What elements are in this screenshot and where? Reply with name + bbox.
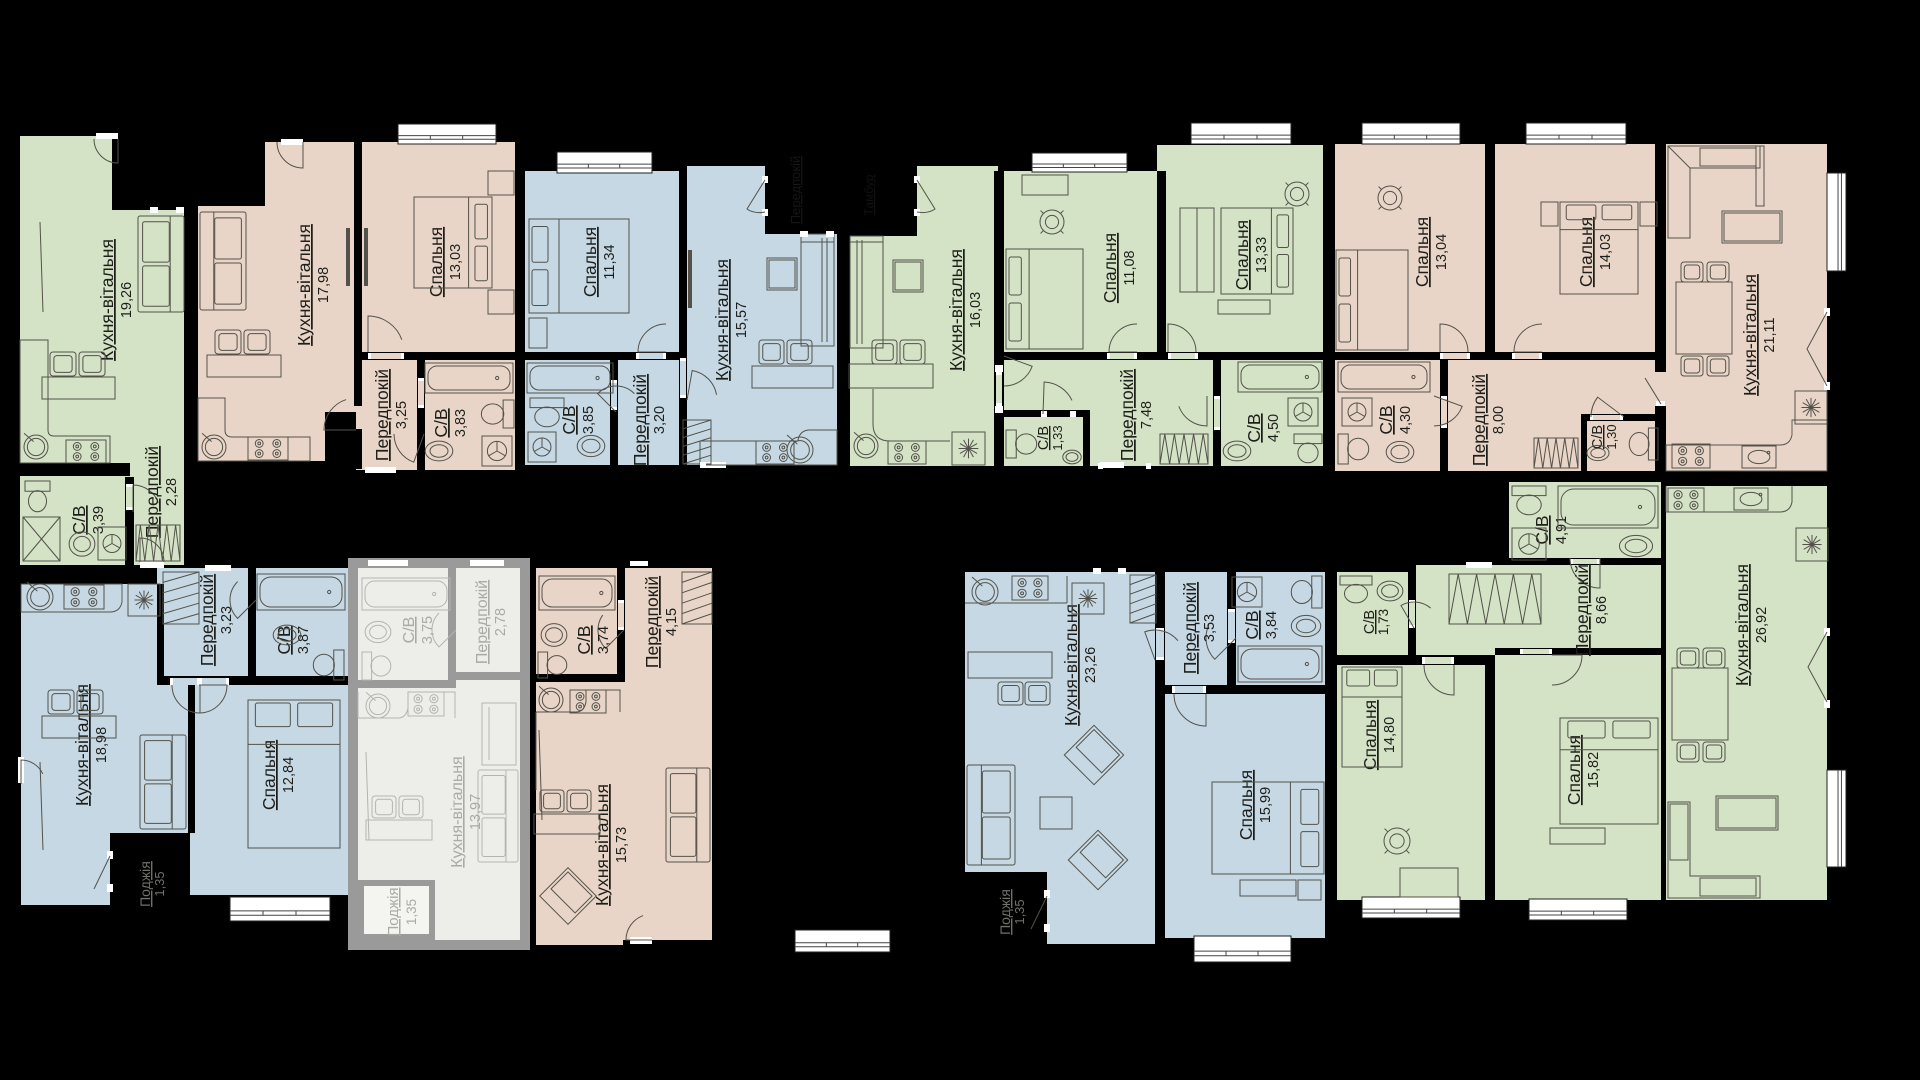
svg-text:Передпокій: Передпокій [1117,369,1137,461]
svg-text:26,92: 26,92 [1754,607,1770,643]
svg-text:Спальня: Спальня [580,227,600,297]
svg-text:Передпокій: Передпокій [1572,564,1592,656]
svg-text:Передпокій: Передпокій [788,156,803,224]
svg-text:14,03: 14,03 [1598,234,1614,270]
svg-text:Спальня: Спальня [1360,700,1380,770]
svg-text:3,85: 3,85 [581,406,597,434]
svg-text:1,73: 1,73 [1376,609,1391,635]
svg-text:7,48: 7,48 [1139,401,1155,429]
svg-text:8,00: 8,00 [1491,406,1507,434]
svg-text:12,84: 12,84 [281,757,297,793]
svg-text:4,91: 4,91 [1554,516,1570,544]
svg-text:3,39: 3,39 [91,506,107,534]
svg-text:С/В: С/В [559,405,579,434]
svg-text:Передпокій: Передпокій [642,576,662,668]
svg-text:Кухня-вітальня: Кухня-вітальня [946,249,966,371]
svg-text:14,80: 14,80 [1382,717,1398,753]
svg-text:13,04: 13,04 [1434,234,1450,270]
svg-text:18,98: 18,98 [94,727,110,763]
svg-text:Кухня-вітальня: Кухня-вітальня [294,224,314,346]
svg-text:3,23: 3,23 [219,606,235,634]
svg-text:21,11: 21,11 [1762,317,1778,352]
svg-text:15,73: 15,73 [614,827,630,863]
svg-text:С/В: С/В [1244,413,1264,442]
svg-text:11,34: 11,34 [602,244,618,279]
svg-text:Кухня-вітальня: Кухня-вітальня [449,756,466,867]
svg-text:3,20: 3,20 [652,406,668,434]
svg-text:Передпокій: Передпокій [1180,582,1200,674]
svg-text:Спальня: Спальня [259,740,279,810]
svg-text:23,26: 23,26 [1083,647,1099,683]
svg-text:1,35: 1,35 [1012,899,1027,924]
svg-text:С/В: С/В [1532,515,1552,544]
svg-text:Передпокій: Передпокій [1469,374,1489,466]
svg-text:3,74: 3,74 [596,626,612,654]
svg-text:С/В: С/В [431,408,451,437]
svg-text:Кухня-вітальня: Кухня-вітальня [712,259,732,381]
svg-text:15,99: 15,99 [1258,787,1274,823]
svg-text:3,25: 3,25 [394,401,410,429]
svg-text:8,66: 8,66 [1594,596,1610,624]
svg-text:3,75: 3,75 [420,616,436,644]
svg-text:13,97: 13,97 [468,794,484,830]
svg-text:16,03: 16,03 [968,292,984,328]
svg-text:Передпокій: Передпокій [197,574,217,666]
svg-text:С/В: С/В [1376,405,1396,434]
svg-text:3,53: 3,53 [1202,614,1218,642]
svg-text:2,78: 2,78 [493,608,509,636]
svg-text:Спальня: Спальня [1232,220,1252,290]
svg-text:Тамбур: Тамбур [862,174,876,215]
svg-text:Кухня-вітальня: Кухня-вітальня [592,784,612,906]
svg-text:1,35: 1,35 [152,871,167,896]
svg-text:3,83: 3,83 [453,409,469,437]
svg-text:1,30: 1,30 [1604,424,1619,449]
svg-text:Кухня-вітальня: Кухня-вітальня [1732,564,1752,686]
svg-text:Спальня: Спальня [1412,217,1432,287]
svg-text:Кухня-вітальня: Кухня-вітальня [97,239,117,361]
svg-text:15,57: 15,57 [734,302,750,338]
svg-text:Спальня: Спальня [1236,770,1256,840]
svg-text:Спальня: Спальня [1564,735,1584,805]
svg-text:19,26: 19,26 [119,282,135,318]
svg-text:С/В: С/В [401,617,418,644]
svg-text:Кухня-вітальня: Кухня-вітальня [1740,274,1760,396]
svg-text:Спальня: Спальня [426,227,446,297]
svg-text:4,15: 4,15 [664,608,680,636]
svg-text:15,82: 15,82 [1586,752,1602,788]
svg-text:Спальня: Спальня [1100,233,1120,303]
svg-text:С/В: С/В [574,625,594,654]
svg-text:11,08: 11,08 [1122,250,1138,285]
svg-text:4,50: 4,50 [1266,414,1282,442]
svg-text:13,03: 13,03 [448,244,464,280]
svg-text:Поджія: Поджія [385,887,402,936]
svg-text:1,33: 1,33 [1050,425,1065,450]
svg-text:Поджія: Поджія [137,861,153,907]
svg-text:Кухня-вітальня: Кухня-вітальня [72,684,92,806]
svg-text:Передпокій: Передпокій [630,374,650,466]
svg-text:3,84: 3,84 [1264,611,1280,639]
svg-text:Поджія: Поджія [997,889,1013,935]
svg-text:4,30: 4,30 [1398,406,1414,434]
svg-text:Кухня-вітальня: Кухня-вітальня [1061,604,1081,726]
svg-text:17,98: 17,98 [316,267,332,303]
svg-text:13,33: 13,33 [1254,237,1270,273]
svg-text:Передпокій: Передпокій [142,446,162,538]
svg-text:С/В: С/В [69,505,89,534]
svg-text:Передпокій: Передпокій [474,580,491,664]
svg-text:С/В: С/В [1242,610,1262,639]
svg-text:2,28: 2,28 [164,478,180,506]
svg-text:1,35: 1,35 [404,899,419,925]
svg-text:Передпокій: Передпокій [372,369,392,461]
svg-text:Спальня: Спальня [1576,217,1596,287]
